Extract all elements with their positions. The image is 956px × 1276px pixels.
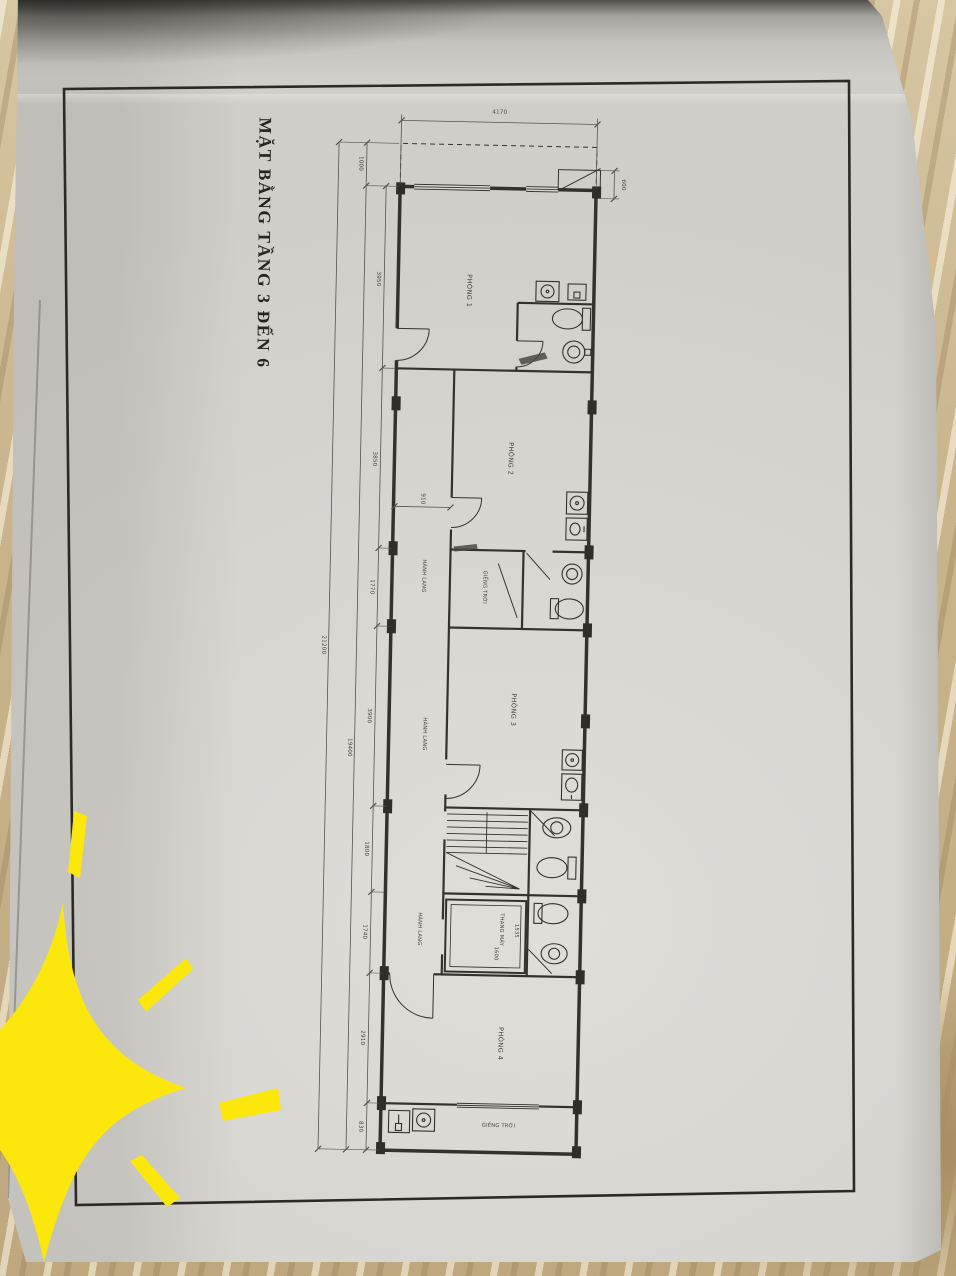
dim-room4-depth: 2910 [358, 1030, 364, 1045]
dim-room3-depth: 3900 [365, 708, 371, 723]
lightwell-void-line [497, 563, 518, 617]
room-label-3: PHÒNG 3 [510, 693, 517, 726]
stair-symbol [446, 811, 529, 889]
dim-top-width: 4170 [492, 110, 507, 116]
toilet-wc-upper [537, 856, 576, 879]
dim-elevator-width: 1600 [492, 946, 497, 960]
lightwell-label-rear: GIẾNG TRỜI [482, 1124, 516, 1130]
floor-plan-drawing [306, 97, 630, 1253]
corridor-label-1: HÀNH LANG [420, 559, 426, 592]
toilet-bath2 [550, 599, 583, 620]
lightwell-label-mid: GIẾNG TRỜI [481, 570, 487, 604]
dim-elevator-depth: 1535 [513, 924, 518, 938]
dim-ledge-depth: 600 [619, 179, 625, 190]
drawing-title: MẶT BẰNG TẦNG 3 ĐẾN 6 [252, 117, 275, 368]
window-symbols [395, 184, 558, 1110]
paper-sheet: MẶT BẰNG TẦNG 3 ĐẾN 6 [0, 0, 956, 1276]
dim-overall-outer: 21200 [320, 635, 326, 654]
dimension-lines [315, 113, 621, 1158]
dim-corridor-width: 910 [419, 493, 425, 504]
balcony-dashed-outline [400, 143, 597, 190]
dim-elevator-zone: 1740 [361, 924, 367, 939]
corridor-label-3: HÀNH LANG [416, 912, 422, 945]
room-label-2: PHÒNG 2 [507, 442, 514, 475]
elevator-label: THANG MÁY [498, 913, 504, 946]
sink-room1 [563, 341, 591, 364]
photo-scene: MẶT BẰNG TẦNG 3 ĐẾN 6 [0, 0, 956, 1276]
sink-wc-lower [541, 943, 567, 964]
toilet-wc-lower [534, 903, 568, 924]
interior-walls [381, 300, 594, 1107]
toilet-room1 [552, 308, 590, 331]
room-label-4: PHÒNG 4 [497, 1027, 504, 1060]
dim-lightwell-depth: 1770 [368, 579, 374, 594]
corridor-label-2: HÀNH LANG [421, 717, 427, 750]
exterior-walls [380, 186, 596, 1154]
dim-room1-depth: 3950 [374, 271, 380, 286]
washer-sink-room2 [566, 492, 588, 540]
washer-sink-room3 [561, 750, 582, 800]
washer-counter-room1 [536, 281, 586, 302]
dim-room2-depth: 3850 [371, 451, 377, 466]
room-label-1: PHÒNG 1 [465, 274, 472, 307]
laundry-sink-rear [388, 1108, 434, 1133]
dim-rear-yard: 830 [357, 1121, 363, 1132]
dim-balcony: 1000 [357, 156, 363, 171]
sink-bath2 [562, 564, 582, 584]
floor-plan: 4170 600 1000 21200 19400 3950 3850 1770… [306, 97, 630, 1253]
dim-stair-depth: 1800 [362, 841, 368, 856]
door-symbols [383, 328, 565, 1020]
dim-overall-inner: 19400 [345, 738, 351, 757]
